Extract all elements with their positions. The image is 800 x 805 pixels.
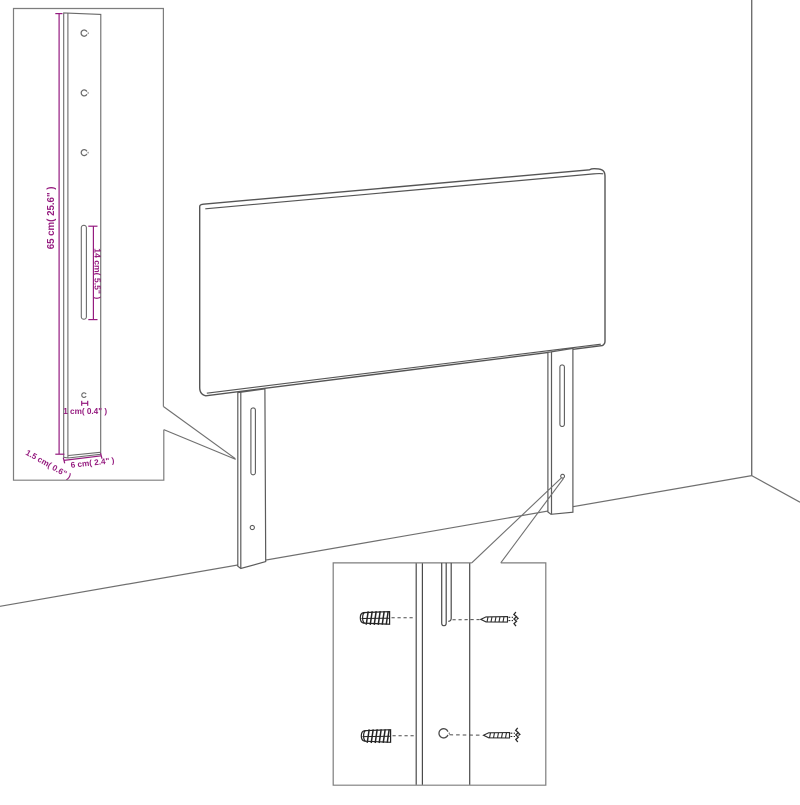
svg-text:14 cm( 5.5" ): 14 cm( 5.5" ) [92,248,102,299]
svg-text:1 cm( 0.4" ): 1 cm( 0.4" ) [63,407,107,416]
svg-text:65 cm( 25.6" ): 65 cm( 25.6" ) [46,187,57,250]
svg-text:6 cm( 2.4" ): 6 cm( 2.4" ) [70,456,115,470]
